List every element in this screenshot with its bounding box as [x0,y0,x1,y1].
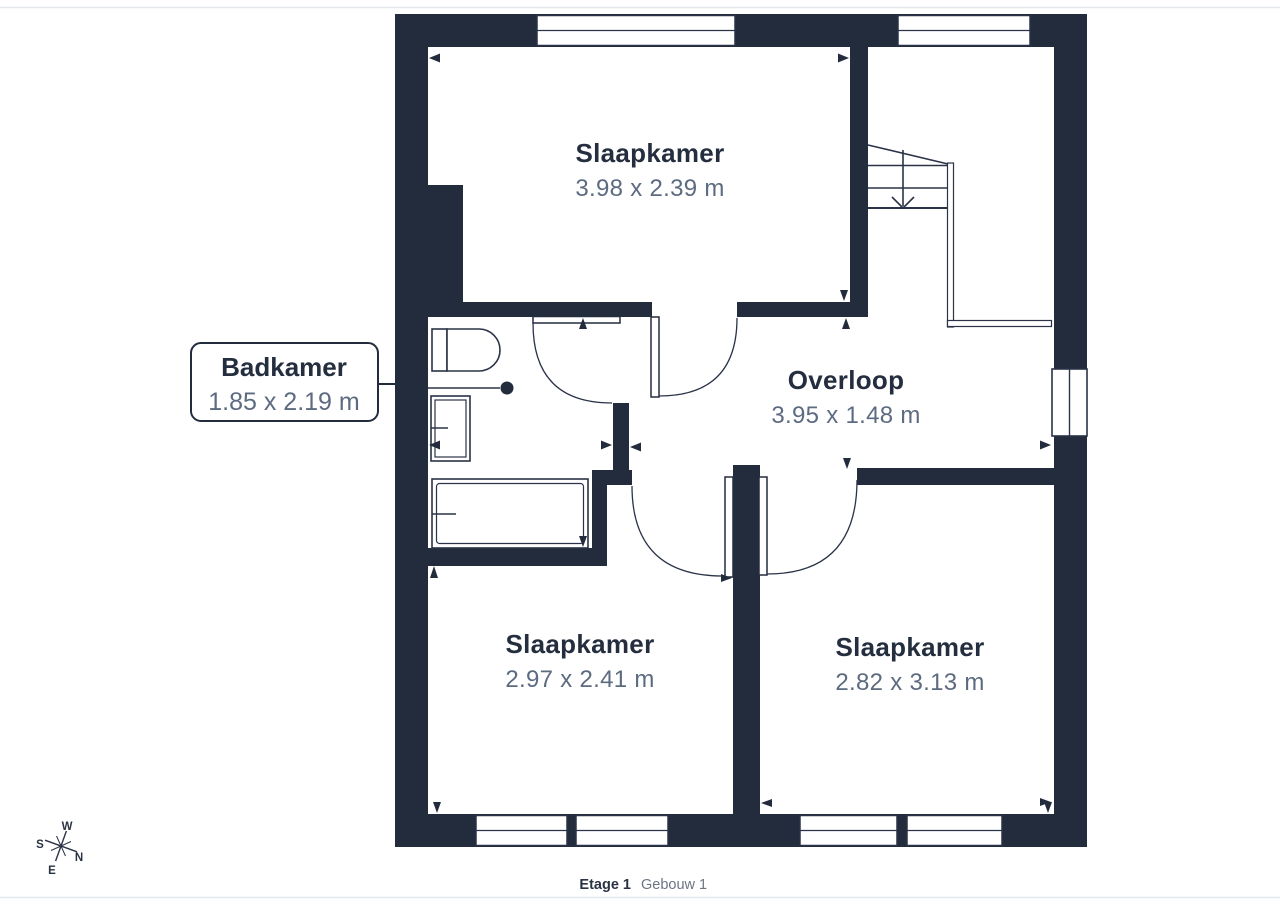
floor-caption: Etage 1 Gebouw 1 [579,877,707,893]
badkamer-callout: Badkamer 1.85 x 2.19 m [191,343,398,421]
window [907,816,1002,846]
svg-text:E: E [48,865,56,877]
door-bottom-right-bedroom [759,477,857,575]
svg-text:Etage 1: Etage 1 [579,877,631,893]
shower-point [428,382,514,395]
door-top-bedroom [651,317,737,397]
svg-text:2.82 x 3.13 m: 2.82 x 3.13 m [835,669,984,696]
svg-text:N: N [75,852,83,864]
svg-text:3.98 x 2.39 m: 3.98 x 2.39 m [575,175,724,202]
svg-text:Slaapkamer: Slaapkamer [506,629,655,659]
bathtub [432,479,588,548]
room-label-bedroom-top: Slaapkamer 3.98 x 2.39 m [575,138,724,202]
radiator [1052,369,1087,436]
compass-rose: W S N E [36,821,83,877]
svg-text:Overloop: Overloop [788,365,905,395]
svg-text:Slaapkamer: Slaapkamer [576,138,725,168]
stairs [868,145,948,208]
stair-railing [948,163,1052,327]
window [476,816,567,846]
window [898,16,1030,46]
window [800,816,897,846]
bathroom-fixtures [428,329,588,548]
compass-star [45,831,77,861]
svg-text:1.85 x 2.19 m: 1.85 x 2.19 m [208,388,359,416]
room-label-bedroom-bottom-right: Slaapkamer 2.82 x 3.13 m [835,632,984,696]
door-bottom-left-bedroom [632,477,733,577]
svg-text:W: W [62,821,73,833]
svg-text:Badkamer: Badkamer [221,352,347,382]
floorplan-viewer[interactable]: Slaapkamer 3.98 x 2.39 m Overloop 3.95 x… [0,0,1280,905]
svg-text:Slaapkamer: Slaapkamer [836,632,985,662]
door-bathroom [533,317,620,404]
sink [431,396,470,461]
room-label-bedroom-bottom-left: Slaapkamer 2.97 x 2.41 m [505,629,654,693]
window [537,16,735,46]
stairs-down-arrow [892,150,914,208]
svg-text:S: S [36,839,44,851]
room-label-overloop: Overloop 3.95 x 1.48 m [771,365,920,429]
svg-text:Gebouw 1: Gebouw 1 [641,877,707,893]
window [576,816,668,846]
svg-text:3.95 x 1.48 m: 3.95 x 1.48 m [771,402,920,429]
toilet [432,329,500,371]
svg-text:2.97 x 2.41 m: 2.97 x 2.41 m [505,666,654,693]
interior-walls [395,40,1087,847]
